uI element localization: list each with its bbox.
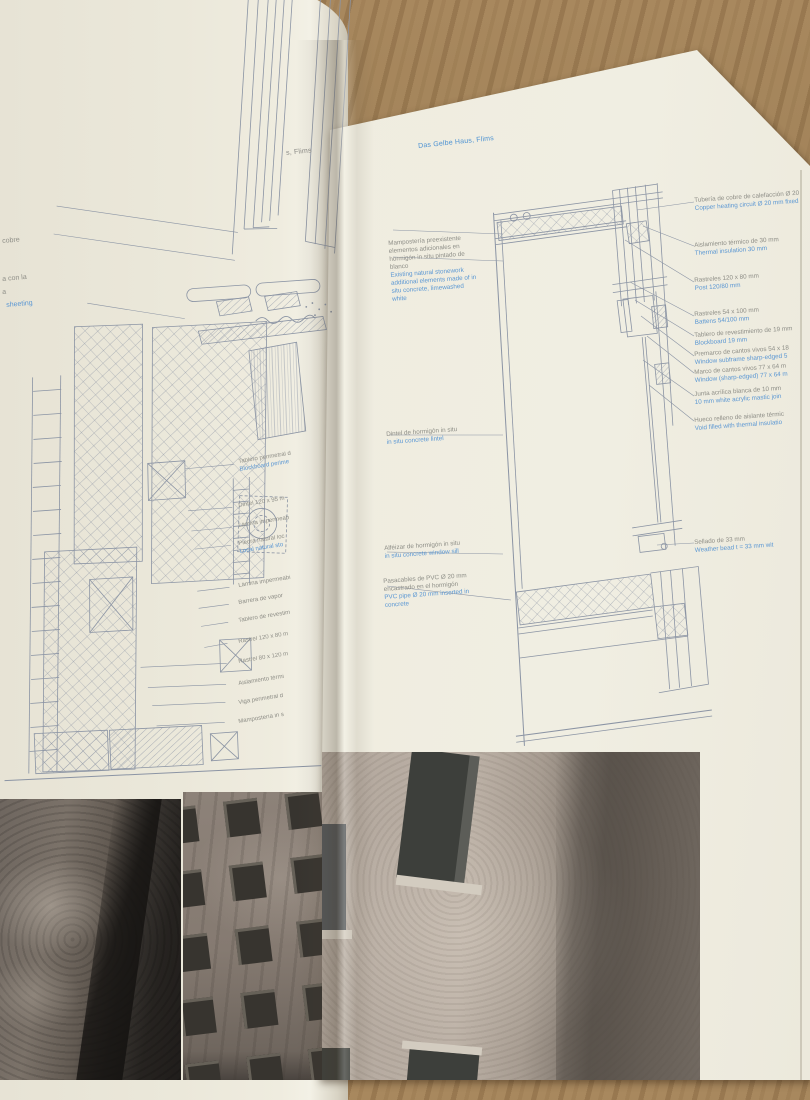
window-opening-partial-left (322, 824, 346, 932)
window-opening-bottom-left (322, 1048, 350, 1080)
mid-annotation-stonework: Mampostería preexistente elementos adici… (388, 234, 478, 304)
photo-stone-corner (322, 752, 700, 1080)
rock-shadow-edge (76, 799, 161, 1080)
left-detail-drawing (0, 0, 360, 800)
edge-label-a: a (2, 289, 7, 298)
edge-label-cobre: cobre (2, 236, 20, 246)
window-sill-left (322, 930, 352, 939)
mid-annotation-pvc-pipe: Pasacables de PVC Ø 20 mm encastrado en … (383, 572, 471, 610)
facade-window-grid (183, 792, 322, 1080)
right-detail-drawing (375, 130, 810, 790)
book-photo: { "book": { "left_page_header": "s, Flim… (0, 0, 810, 1080)
photo-rock-closeup (0, 799, 181, 1080)
building-corner-shadow (556, 752, 700, 1080)
photo-facade-windows (183, 792, 322, 1080)
window-opening-large (396, 752, 479, 886)
